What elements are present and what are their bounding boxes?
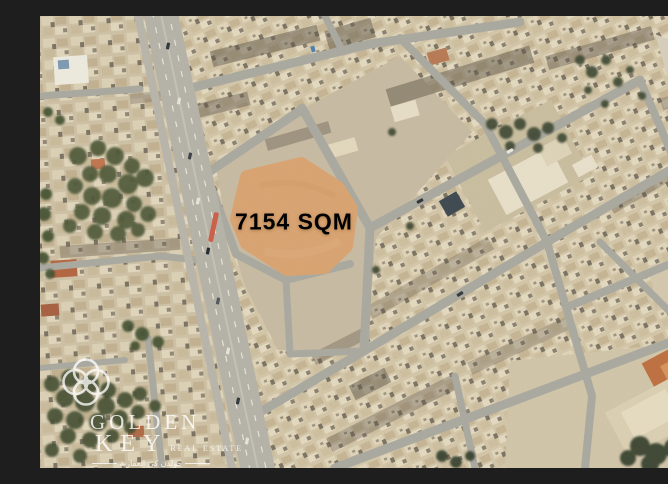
- brand-watermark: GOLDEN KEY REAL ESTATE جولدن كي العقارية: [58, 354, 238, 468]
- plot-area-label: 7154 SQM: [235, 209, 353, 236]
- satellite-listing-photo: 7154 SQM GOLDEN KEY REAL ESTATE جولدن كي…: [40, 16, 668, 468]
- divider-line: [185, 463, 210, 464]
- brand-divider: جولدن كي العقارية: [92, 459, 210, 468]
- brand-name-line1: GOLDEN: [90, 412, 238, 432]
- brand-arabic-tagline: جولدن كي العقارية: [117, 459, 186, 468]
- golden-key-logo-icon: [58, 354, 114, 410]
- divider-line: [92, 463, 117, 464]
